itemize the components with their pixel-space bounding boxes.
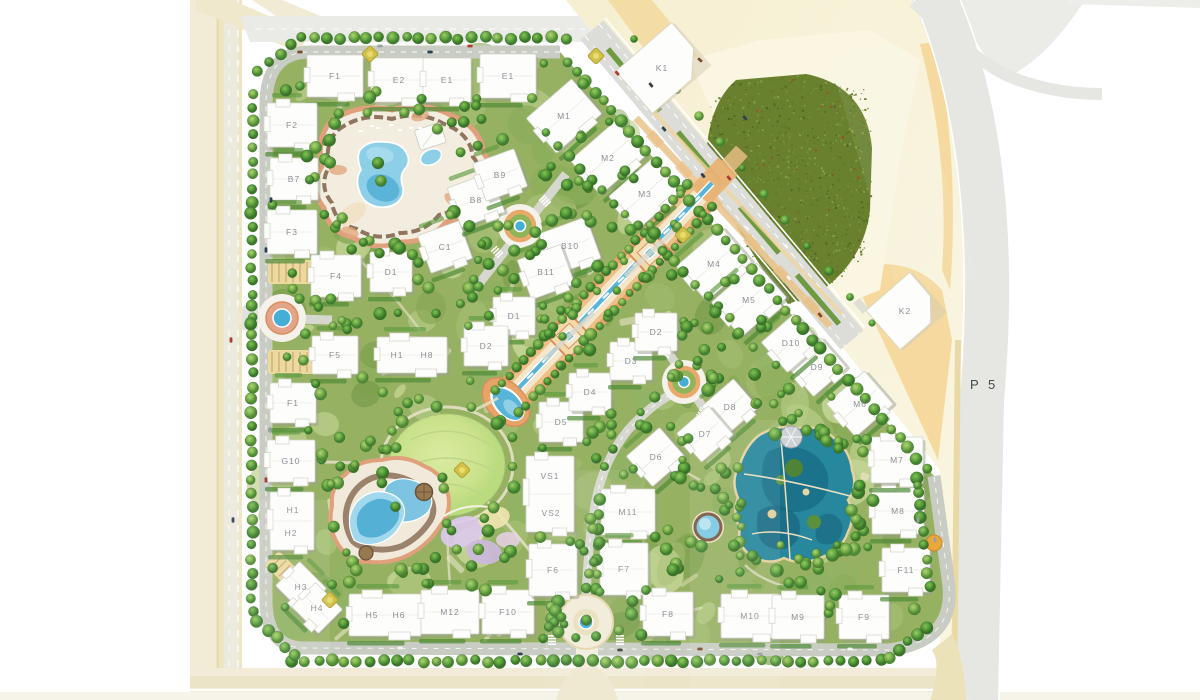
svg-text:E1: E1 [441, 75, 453, 85]
svg-text:B11: B11 [537, 267, 555, 277]
svg-text:D1: D1 [385, 267, 398, 277]
svg-text:D3: D3 [625, 356, 638, 366]
svg-text:K2: K2 [899, 306, 911, 316]
svg-text:F9: F9 [858, 612, 870, 622]
svg-text:M1: M1 [557, 111, 571, 121]
svg-text:D8: D8 [724, 402, 737, 412]
svg-text:H5: H5 [366, 610, 379, 620]
svg-text:F2: F2 [286, 120, 298, 130]
svg-text:M9: M9 [791, 612, 805, 622]
svg-text:B8: B8 [470, 195, 482, 205]
svg-text:D6: D6 [650, 452, 663, 462]
svg-text:M3: M3 [638, 189, 652, 199]
svg-text:H6: H6 [393, 610, 406, 620]
svg-text:M6: M6 [853, 399, 867, 409]
svg-text:D9: D9 [811, 362, 824, 372]
svg-text:P 5: P 5 [970, 377, 998, 392]
svg-text:D2: D2 [650, 327, 663, 337]
svg-text:F1: F1 [329, 71, 341, 81]
svg-text:E2: E2 [393, 75, 405, 85]
svg-text:M5: M5 [742, 295, 756, 305]
svg-text:C1: C1 [439, 242, 452, 252]
svg-text:F4: F4 [330, 271, 342, 281]
svg-text:B10: B10 [561, 241, 579, 251]
svg-text:D4: D4 [584, 387, 597, 397]
svg-text:M12: M12 [440, 607, 460, 617]
svg-text:F1: F1 [287, 398, 299, 408]
svg-text:D5: D5 [555, 417, 568, 427]
svg-text:F5: F5 [329, 350, 341, 360]
svg-text:H8: H8 [421, 350, 434, 360]
svg-text:D2: D2 [480, 341, 493, 351]
svg-text:M2: M2 [601, 153, 615, 163]
svg-text:F3: F3 [286, 227, 298, 237]
svg-text:M8: M8 [891, 506, 905, 516]
svg-text:H1: H1 [391, 350, 404, 360]
svg-text:M4: M4 [707, 259, 721, 269]
svg-text:F8: F8 [662, 609, 674, 619]
svg-text:E1: E1 [502, 71, 514, 81]
svg-text:G10: G10 [281, 456, 300, 466]
svg-text:M7: M7 [890, 455, 904, 465]
svg-text:D10: D10 [782, 338, 801, 348]
svg-text:K1: K1 [656, 63, 668, 73]
svg-text:B7: B7 [288, 174, 300, 184]
svg-text:D1: D1 [508, 311, 521, 321]
svg-text:F11: F11 [897, 565, 914, 575]
svg-text:B9: B9 [494, 170, 506, 180]
svg-text:F10: F10 [499, 607, 517, 617]
